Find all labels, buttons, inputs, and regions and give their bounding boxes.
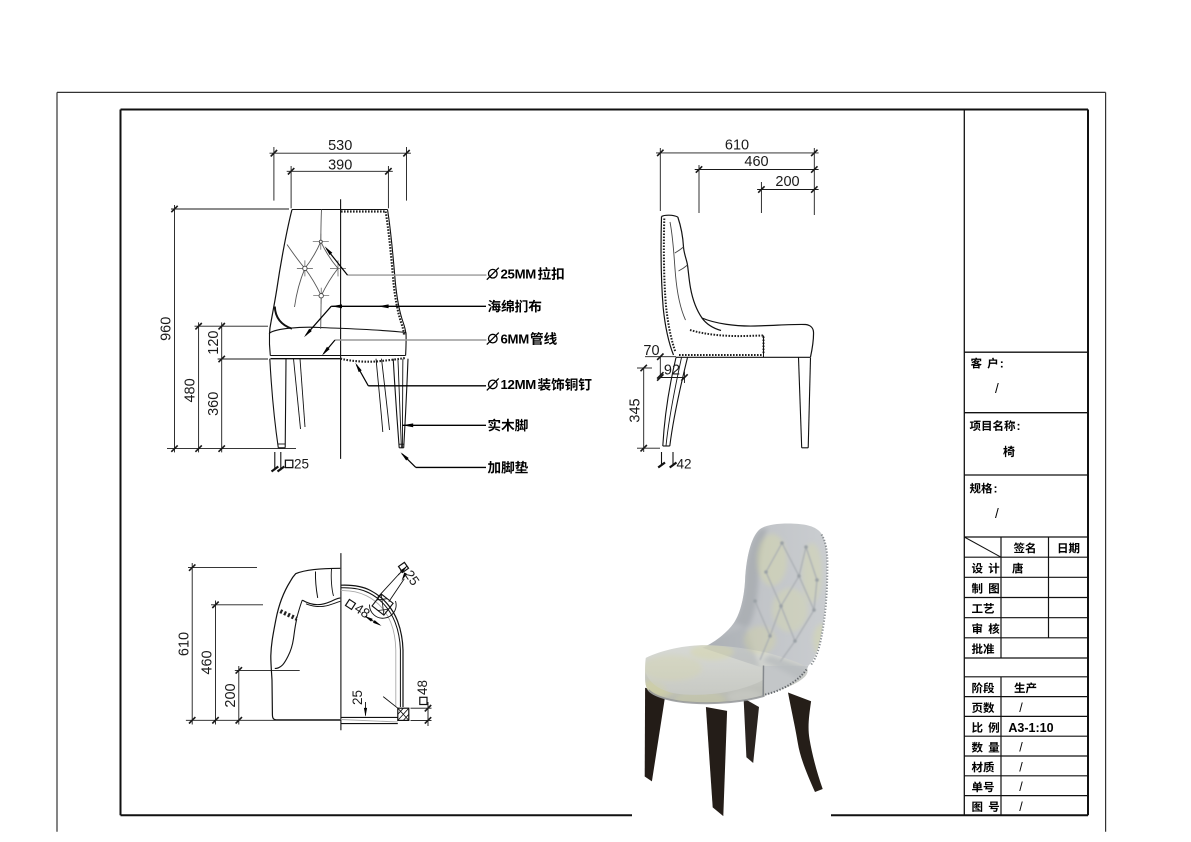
svg-text:610: 610 xyxy=(176,632,192,656)
svg-text:25: 25 xyxy=(294,457,309,472)
svg-text:/: / xyxy=(995,506,999,521)
svg-text:390: 390 xyxy=(328,158,352,174)
svg-text:960: 960 xyxy=(159,317,175,341)
svg-text:530: 530 xyxy=(328,138,352,154)
svg-text:/: / xyxy=(1019,741,1023,755)
svg-text:/: / xyxy=(1019,800,1023,814)
svg-text:92: 92 xyxy=(664,362,680,378)
svg-text::: : xyxy=(994,482,998,496)
svg-text::: : xyxy=(1017,419,1021,433)
svg-text:610: 610 xyxy=(725,138,749,154)
svg-text:200: 200 xyxy=(223,683,239,707)
svg-text::: : xyxy=(1000,357,1004,371)
svg-text:25MM: 25MM xyxy=(501,267,537,282)
svg-text:42: 42 xyxy=(677,457,692,472)
svg-text:200: 200 xyxy=(775,174,799,190)
svg-text:345: 345 xyxy=(627,398,643,422)
svg-text:460: 460 xyxy=(200,650,216,674)
svg-text:460: 460 xyxy=(744,154,768,170)
svg-text:480: 480 xyxy=(183,378,199,402)
svg-text:/: / xyxy=(1019,760,1023,774)
svg-text:/: / xyxy=(995,381,999,396)
svg-text:/: / xyxy=(1019,701,1023,715)
svg-text:6MM: 6MM xyxy=(501,331,530,346)
svg-text:360: 360 xyxy=(206,392,222,416)
svg-text:12MM: 12MM xyxy=(501,377,537,392)
svg-text:A3-1:10: A3-1:10 xyxy=(1008,721,1053,735)
svg-text:/: / xyxy=(1019,780,1023,794)
svg-text:120: 120 xyxy=(206,330,222,354)
svg-text:25: 25 xyxy=(350,690,365,705)
svg-text:48: 48 xyxy=(415,680,430,695)
